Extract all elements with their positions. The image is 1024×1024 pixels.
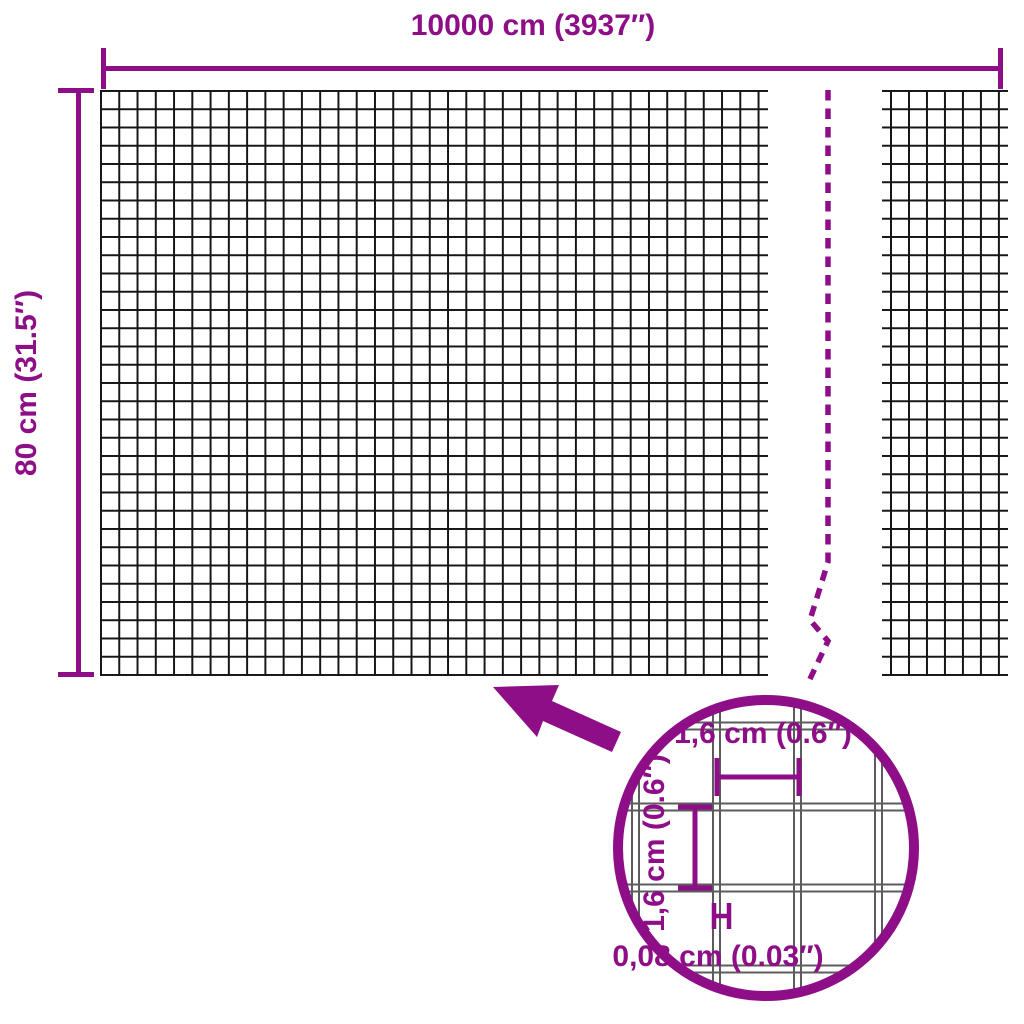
width-dimension-label: 10000 cm (3937″) [283,8,783,44]
width-dimension-line [101,66,1003,71]
wire-thickness-label: 0,08 cm (0.03″) [518,939,918,975]
height-dimension-line [76,90,81,675]
height-dimension-label: 80 cm (31.5″) [9,233,49,533]
mesh-panel-right-wire-stubs-left [882,90,890,676]
mesh-panel-left-wire-stubs [760,90,768,676]
height-dimension-endcap-bottom [58,672,94,677]
detail-cell-width-label: 1,6 cm (0.6″) [563,716,963,752]
mesh-panel-right-wire-stubs-right [1000,90,1008,676]
width-dimension-endcap-right [998,48,1003,89]
mesh-panel-left [100,90,760,676]
length-break-dashed-line [809,90,828,681]
diagram-canvas: 10000 cm (3937″) 80 cm (31.5″) 1,6 cm (0… [0,0,1024,1024]
mesh-panel-right [890,90,1000,676]
